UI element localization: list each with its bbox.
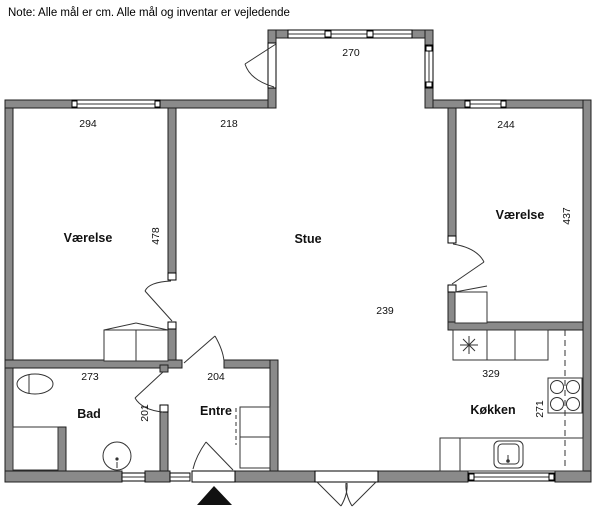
- dim-bedroom-right-width: 244: [497, 119, 515, 131]
- window-bedroom-left-icon: [72, 100, 160, 108]
- dim-bumpout-window: 270: [342, 47, 360, 59]
- dim-kitchen-depth: 271: [534, 400, 546, 418]
- room-label-entry: Entre: [200, 404, 232, 418]
- room-label-living-room: Stue: [294, 232, 321, 246]
- bathroom-sink-icon: [103, 442, 131, 470]
- wardrobe-entry-icon: [236, 407, 270, 468]
- window-bumpout-top-icon: [288, 30, 412, 38]
- kitchen-counter-icon: [453, 330, 548, 360]
- dim-bedroom-right-depth: 437: [561, 207, 573, 225]
- wardrobe-bedroom-left-icon: [104, 323, 168, 361]
- dim-entry-width: 204: [207, 371, 225, 383]
- door-entry-living-icon: [184, 336, 224, 363]
- window-bedroom-right-icon: [465, 100, 506, 108]
- entrance-marker-icon: [197, 486, 232, 505]
- dim-hall-top-width: 218: [220, 118, 238, 130]
- door-main-entrance-icon: [193, 442, 233, 470]
- window-kitchen-icon: [468, 473, 555, 481]
- dim-bedroom-left-depth: 478: [150, 227, 162, 245]
- door-bedroom-right-icon: [452, 244, 484, 284]
- toilet-icon: [17, 374, 53, 394]
- room-label-bedroom-left: Værelse: [64, 231, 113, 245]
- room-label-kitchen: Køkken: [470, 403, 515, 417]
- note-text: Note: Alle mål er cm. Alle mål og invent…: [8, 7, 290, 19]
- dim-kitchen-width: 329: [482, 368, 500, 380]
- dim-bathroom-depth: 201: [139, 404, 151, 422]
- dim-bathroom-width: 273: [81, 371, 99, 383]
- kitchen-sink-icon: [494, 441, 523, 468]
- dim-bedroom-left-width: 294: [79, 118, 97, 130]
- door-bedroom-left-icon: [145, 281, 172, 321]
- door-french-living-icon: [317, 482, 376, 506]
- window-bathroom-icon: [122, 473, 145, 481]
- dim-living-room-width: 239: [376, 305, 394, 317]
- doors: [135, 44, 484, 506]
- room-label-bathroom: Bad: [77, 407, 101, 421]
- cabinet-bedroom-right-icon: [455, 286, 487, 323]
- floorplan: Note: Alle mål er cm. Alle mål og invent…: [0, 0, 600, 511]
- window-bumpout-right-icon: [425, 45, 433, 88]
- room-label-bedroom-right: Værelse: [496, 208, 545, 222]
- shower-icon: [13, 427, 58, 470]
- window-entry-icon: [170, 473, 190, 481]
- floorplan-drawing: [0, 0, 600, 511]
